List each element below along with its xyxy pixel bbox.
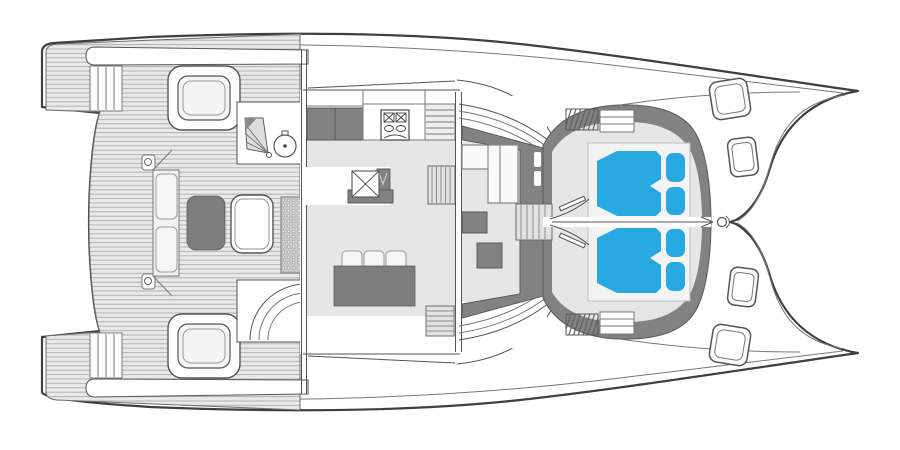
bow-hatch-top-inner xyxy=(727,136,759,177)
bed-bottom-cabin xyxy=(588,226,690,301)
bow-hatch-top-outer xyxy=(708,77,751,120)
wardrobe-top xyxy=(566,109,598,130)
deck-hatch-bottom xyxy=(168,314,240,378)
gunwale-band-top xyxy=(86,47,308,65)
mattress xyxy=(597,151,661,216)
wardrobe-bottom xyxy=(566,314,598,335)
stairs-port-hull xyxy=(428,166,455,204)
stairs-starboard-hull xyxy=(426,306,454,336)
stove xyxy=(381,110,409,140)
bench-cushion xyxy=(156,227,177,272)
wall-slot xyxy=(534,152,541,167)
passage-cabinet xyxy=(462,212,487,233)
salon-sofa xyxy=(334,251,415,306)
bench-cushion xyxy=(156,174,177,219)
cleat-top xyxy=(142,155,155,170)
deck-grate xyxy=(281,197,302,273)
bow-hatch-bottom-outer xyxy=(708,323,751,366)
pillow xyxy=(666,229,685,257)
bed-top-cabin xyxy=(588,143,690,218)
passage-seat xyxy=(477,243,502,268)
pillow xyxy=(666,262,685,291)
aft-deck xyxy=(46,34,308,410)
cabin-steps-top xyxy=(600,110,634,132)
flybridge-stair-bottom xyxy=(237,280,308,342)
nav-station xyxy=(303,167,393,205)
galley-louver-unit xyxy=(425,104,455,140)
chart-table xyxy=(352,171,379,197)
cockpit-table-dark xyxy=(187,196,225,250)
bow-hatch-bottom-inner xyxy=(727,266,759,307)
flybridge-stair-top xyxy=(237,102,308,164)
wall-slot xyxy=(534,171,541,186)
deck-hatch-top xyxy=(168,66,240,130)
cabin-steps-bottom xyxy=(600,312,634,334)
catamaran-floorplan xyxy=(0,0,900,450)
floorplan-svg xyxy=(0,0,900,450)
pillow xyxy=(666,187,685,215)
cockpit-table-light xyxy=(231,195,273,253)
gunwale-band-bottom xyxy=(86,379,308,397)
transom-steps-bottom xyxy=(90,333,122,378)
transom-steps-top xyxy=(90,66,122,111)
mattress xyxy=(597,228,661,293)
salon-table xyxy=(334,266,415,306)
aft-bench xyxy=(153,150,179,296)
pillow xyxy=(666,153,685,182)
